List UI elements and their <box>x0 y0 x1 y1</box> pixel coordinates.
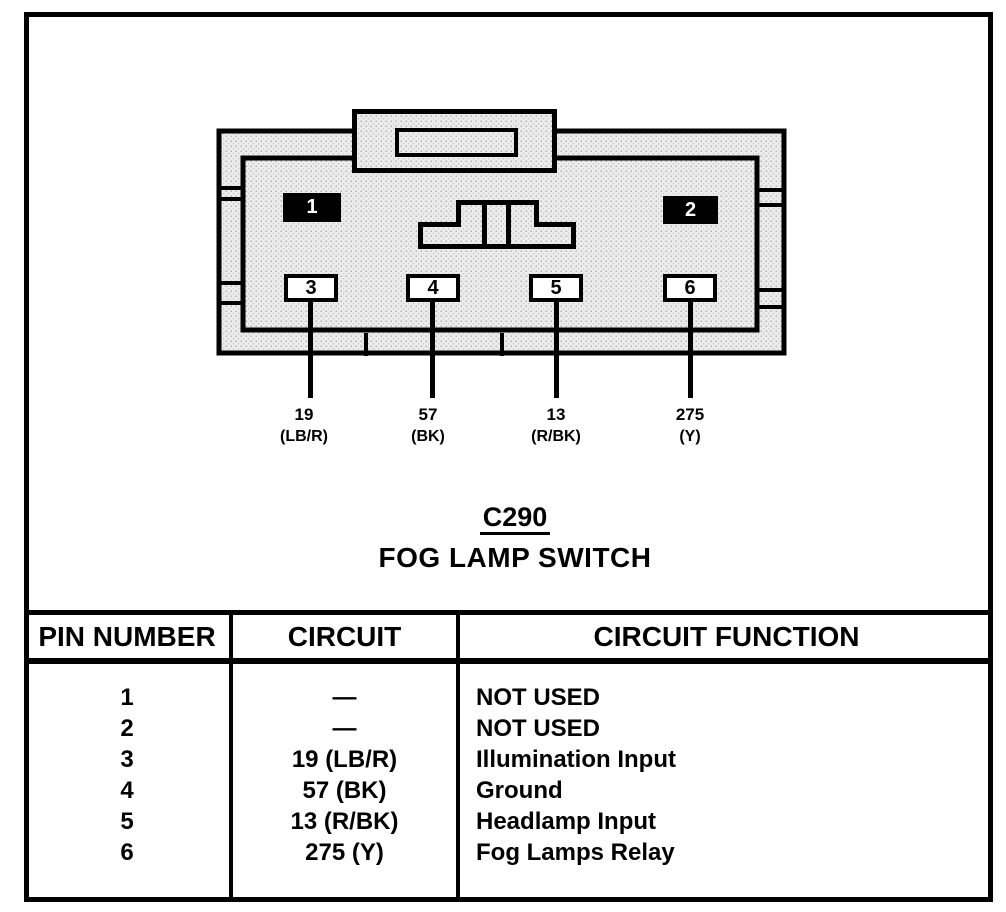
row-pin: 2 <box>24 716 230 742</box>
row-circuit: 13 (R/BK) <box>233 809 456 835</box>
pin-1-label: 1 <box>283 193 341 222</box>
wire-label-pin5: 13 (R/BK) <box>496 405 616 447</box>
header-pin-number: PIN NUMBER <box>24 623 230 651</box>
wire-label-pin3: 19 (LB/R) <box>244 405 364 447</box>
row-function: Headlamp Input <box>476 809 986 835</box>
wire-label-pin6: 275 (Y) <box>630 405 750 447</box>
wire-label-pin4: 57 (BK) <box>368 405 488 447</box>
row-pin: 1 <box>24 685 230 711</box>
circuit-number: 19 <box>244 405 364 425</box>
table-header-divider <box>24 658 993 664</box>
connector-id: C290 <box>480 503 551 535</box>
row-circuit: — <box>233 716 456 742</box>
row-pin: 4 <box>24 778 230 804</box>
pin-6-label: 6 <box>663 274 717 302</box>
row-function: Illumination Input <box>476 747 986 773</box>
pin-4-label: 4 <box>406 274 460 302</box>
pin-3-label: 3 <box>284 274 338 302</box>
header-circuit-function: CIRCUIT FUNCTION <box>460 623 993 651</box>
table-top-border <box>24 610 993 615</box>
wire-color-code: (LB/R) <box>244 427 364 447</box>
row-function: NOT USED <box>476 716 986 742</box>
circuit-number: 13 <box>496 405 616 425</box>
row-pin: 5 <box>24 809 230 835</box>
row-pin: 6 <box>24 840 230 866</box>
row-function: NOT USED <box>476 685 986 711</box>
header-circuit: CIRCUIT <box>233 623 456 651</box>
connector-top-tab <box>355 112 555 171</box>
connector-id-row: C290 <box>12 503 1006 535</box>
row-function: Ground <box>476 778 986 804</box>
row-circuit: 57 (BK) <box>233 778 456 804</box>
wire-color-code: (Y) <box>630 427 750 447</box>
connector-name: FOG LAMP SWITCH <box>12 542 1006 574</box>
row-function: Fog Lamps Relay <box>476 840 986 866</box>
wire-color-code: (R/BK) <box>496 427 616 447</box>
row-circuit: — <box>233 685 456 711</box>
row-pin: 3 <box>24 747 230 773</box>
circuit-number: 275 <box>630 405 750 425</box>
circuit-number: 57 <box>368 405 488 425</box>
wire-color-code: (BK) <box>368 427 488 447</box>
pin-2-label: 2 <box>663 196 718 224</box>
table-column-divider-2 <box>456 610 460 902</box>
row-circuit: 275 (Y) <box>233 840 456 866</box>
row-circuit: 19 (LB/R) <box>233 747 456 773</box>
pin-5-label: 5 <box>529 274 583 302</box>
scanned-wiring-diagram-page: 1 2 3 4 5 6 19 (LB/R) 57 (BK) 13 (R/BK) … <box>0 0 1006 912</box>
